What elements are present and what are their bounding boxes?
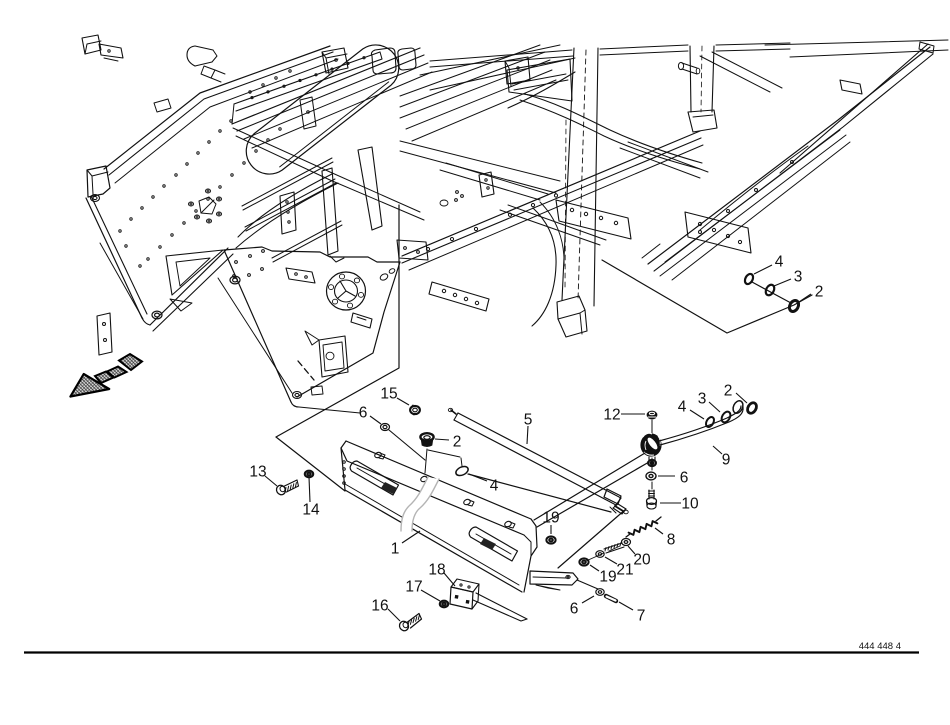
svg-text:10: 10 <box>681 496 699 513</box>
svg-text:18: 18 <box>428 562 445 579</box>
svg-text:1: 1 <box>391 541 400 558</box>
svg-text:3: 3 <box>698 391 707 408</box>
svg-text:7: 7 <box>637 608 646 625</box>
svg-text:9: 9 <box>722 452 731 469</box>
svg-text:4: 4 <box>775 254 784 271</box>
svg-text:15: 15 <box>380 386 397 403</box>
svg-text:4: 4 <box>678 399 687 416</box>
svg-text:19: 19 <box>542 510 559 527</box>
svg-text:3: 3 <box>794 269 803 286</box>
svg-text:6: 6 <box>359 405 368 422</box>
svg-text:17: 17 <box>405 579 422 596</box>
svg-text:20: 20 <box>633 552 651 569</box>
svg-text:444 448 4: 444 448 4 <box>859 641 901 652</box>
svg-text:6: 6 <box>680 470 689 487</box>
svg-text:8: 8 <box>667 532 676 549</box>
svg-text:12: 12 <box>603 407 620 424</box>
svg-text:21: 21 <box>616 562 633 579</box>
svg-text:13: 13 <box>249 464 266 481</box>
svg-text:2: 2 <box>815 284 824 301</box>
svg-text:6: 6 <box>570 601 579 618</box>
svg-text:2: 2 <box>724 383 733 400</box>
svg-text:4: 4 <box>490 478 499 495</box>
svg-text:16: 16 <box>371 598 388 615</box>
svg-text:19: 19 <box>599 569 616 586</box>
svg-text:5: 5 <box>524 412 533 429</box>
svg-text:2: 2 <box>453 434 462 451</box>
svg-text:14: 14 <box>302 502 320 519</box>
